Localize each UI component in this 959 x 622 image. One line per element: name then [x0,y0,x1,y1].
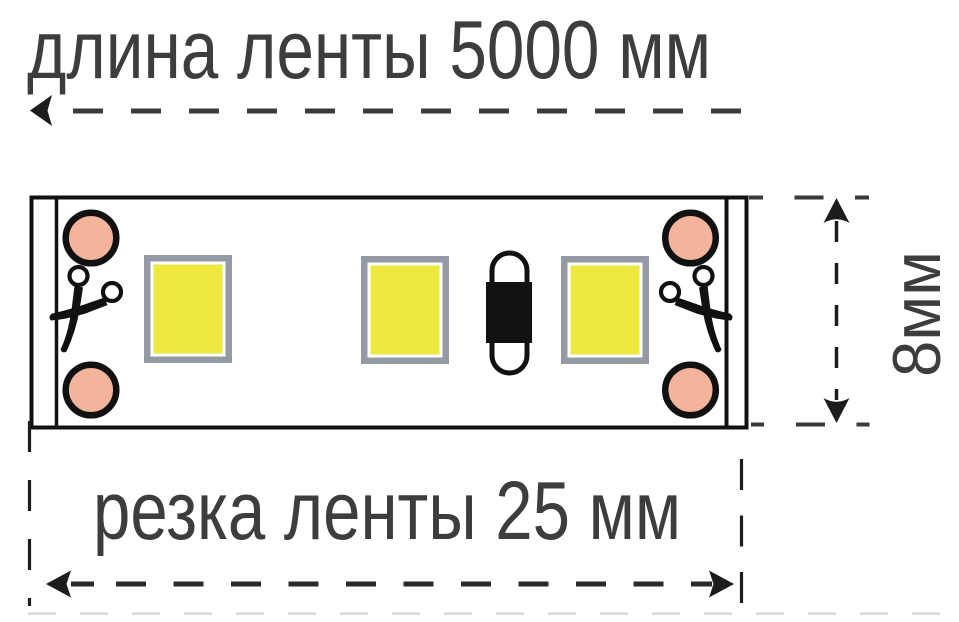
svg-text:длина ленты 5000 мм: длина ленты 5000 мм [27,3,711,96]
svg-text:8мм: 8мм [879,251,955,377]
svg-text:резка ленты 25 мм: резка ленты 25 мм [93,464,681,557]
